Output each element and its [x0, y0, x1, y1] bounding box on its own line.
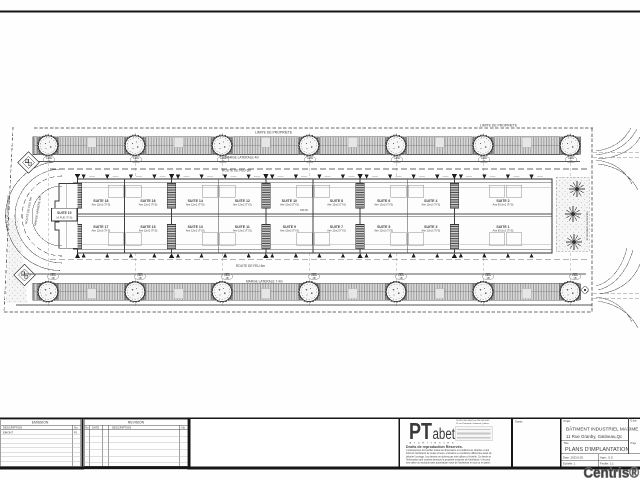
svg-text:En bordure rue Granby: En bordure rue Granby [585, 211, 589, 240]
svg-text:LIMITE DE PROPRIETE: LIMITE DE PROPRIETE [255, 131, 293, 135]
svg-text:DATE: DATE [92, 426, 99, 430]
svg-text:Aire 90.2m2 (TYS): Aire 90.2m2 (TYS) [493, 204, 514, 207]
svg-text:Projet: Projet [564, 419, 571, 423]
svg-text:Aire 12m2 (TYS): Aire 12m2 (TYS) [139, 230, 158, 233]
svg-text:14 RUE (TYS): 14 RUE (TYS) [56, 217, 72, 220]
svg-text:PLANS D'IMPLANTATION: PLANS D'IMPLANTATION [565, 447, 629, 453]
svg-text:MARGE LATERALE 4m: MARGE LATERALE 4m [225, 156, 259, 160]
svg-text:etre utilise ou reproduit sans: etre utilise ou reproduit sans autorisat… [406, 461, 491, 464]
svg-text:SUITE 17: SUITE 17 [93, 225, 108, 229]
svg-text:Proje: Proje [631, 442, 637, 445]
svg-text:Aire 12m2 (TYS): Aire 12m2 (TYS) [92, 230, 111, 233]
svg-text:Aire 12m2 (TYS): Aire 12m2 (TYS) [374, 204, 393, 207]
svg-text:1B: 1B [573, 276, 576, 280]
svg-text:1A: 1A [569, 159, 572, 163]
svg-text:SUITE 18: SUITE 18 [93, 199, 108, 203]
svg-text:DESCRIPTION: DESCRIPTION [112, 426, 131, 430]
svg-text:11 Rue Granby, Gatineau,Qc: 11 Rue Granby, Gatineau,Qc [566, 434, 623, 439]
svg-text:Aire 12m2 (TYS): Aire 12m2 (TYS) [327, 230, 346, 233]
svg-text:1B: 1B [486, 276, 489, 280]
svg-text:Centris®: Centris® [584, 464, 640, 480]
svg-text:1B: 1B [138, 276, 141, 280]
svg-text:Titre: Titre [564, 441, 570, 445]
svg-text:180.00: 180.00 [300, 208, 308, 212]
svg-text:SUITE 10: SUITE 10 [282, 199, 297, 203]
svg-text:Aire 90.2m2 (TYS): Aire 90.2m2 (TYS) [493, 230, 514, 233]
svg-text:Aire 12m2 (TYS): Aire 12m2 (TYS) [233, 230, 252, 233]
svg-text:L'entrepreneur doit verifier t: L'entrepreneur doit verifier toutes les … [406, 449, 489, 452]
svg-text:Aire 12m2 (TYS): Aire 12m2 (TYS) [421, 204, 440, 207]
svg-text:Aire 12m2 (TYS): Aire 12m2 (TYS) [186, 204, 205, 207]
svg-text:SUITE 3: SUITE 3 [424, 225, 437, 229]
svg-text:1B: 1B [399, 276, 402, 280]
svg-text:l'information qu'il contient d: l'information qu'il contient demeure la … [406, 458, 490, 461]
svg-text:No: No [182, 426, 186, 430]
svg-text:1A: 1A [395, 159, 398, 163]
svg-text:DESCRIPTION: DESCRIPTION [3, 426, 22, 430]
svg-text:No: No [85, 426, 89, 430]
svg-text:SUITE 15: SUITE 15 [140, 225, 155, 229]
svg-text:EMISSION: EMISSION [32, 421, 49, 425]
svg-text:MARGE LATERALE 7.4m: MARGE LATERALE 7.4m [246, 279, 283, 283]
svg-text:SUITE 7: SUITE 7 [330, 225, 343, 229]
svg-text:SUITE 13: SUITE 13 [188, 225, 203, 229]
svg-text:Date: 2023.6.05: Date: 2023.6.05 [563, 455, 583, 459]
svg-text:SUITE 9: SUITE 9 [283, 225, 296, 229]
svg-text:SUITE 12: SUITE 12 [235, 199, 250, 203]
svg-text:Aire 12m2 (TYS): Aire 12m2 (TYS) [280, 230, 299, 233]
svg-text:LIMITE DE PROPRIETE: LIMITE DE PROPRIETE [480, 124, 518, 128]
svg-text:Aire 12m2 (TYS): Aire 12m2 (TYS) [421, 230, 440, 233]
svg-text:SUITE 6: SUITE 6 [377, 199, 390, 203]
svg-text:Aire 12m2 (TYS): Aire 12m2 (TYS) [139, 204, 158, 207]
svg-text:SUITE 19: SUITE 19 [57, 211, 71, 215]
svg-text:Appr.: S.G: Appr.: S.G [600, 455, 613, 459]
svg-text:ROUTE DE FEU 6m: ROUTE DE FEU 6m [222, 169, 251, 173]
svg-text:BÂTIMENT INDUSTRIEL MAXIME LAC: BÂTIMENT INDUSTRIEL MAXIME LAC [566, 425, 640, 431]
svg-text:11 rue Principale, Gatineau Qu: 11 rue Principale, Gatineau Quebec [456, 422, 489, 425]
svg-text:1A: 1A [134, 159, 137, 163]
svg-text:EMONT: EMONT [3, 430, 13, 434]
svg-text:ROUTE DE FEU 6m: ROUTE DE FEU 6m [236, 264, 265, 268]
svg-text:a r c h i t e c t e s: a r c h i t e c t e s [410, 440, 455, 444]
svg-text:P1: P1 [74, 430, 78, 434]
svg-text:No: No [74, 426, 78, 430]
svg-text:informer l'architecte de toute: informer l'architecte de toutes erreurs,… [406, 452, 492, 455]
svg-text:1B: 1B [51, 276, 54, 280]
svg-text:SUITE 16: SUITE 16 [140, 199, 155, 203]
svg-text:Sceau: Sceau [515, 419, 523, 423]
svg-text:SUITE 4: SUITE 4 [424, 199, 437, 203]
svg-text:debuter l'ouvrage. Les dessins: debuter l'ouvrage. Les dessins ne doiven… [406, 455, 491, 458]
svg-text:Echelle: 1: Echelle: 1 [563, 462, 576, 466]
svg-text:Tel 819 000 0000 Fax 819 000: Tel 819 000 0000 Fax 819 000 0000 [456, 420, 490, 422]
svg-text:E.dos: E.dos [631, 420, 638, 423]
svg-text:SUITE 1: SUITE 1 [496, 225, 509, 229]
svg-text:1A: 1A [482, 159, 485, 163]
svg-text:SUITE 11: SUITE 11 [235, 225, 250, 229]
svg-text:REVISION: REVISION [128, 421, 145, 425]
svg-text:Aire 12m2 (TYS): Aire 12m2 (TYS) [327, 204, 346, 207]
svg-text:Aire 12m2 (TYS): Aire 12m2 (TYS) [92, 204, 111, 207]
svg-text:Aire 12m2 (TYS): Aire 12m2 (TYS) [186, 230, 205, 233]
svg-text:Aire 12m2 (TYS): Aire 12m2 (TYS) [280, 204, 299, 207]
svg-text:SUITE 2: SUITE 2 [496, 199, 509, 203]
svg-text:SUITE 14: SUITE 14 [188, 199, 203, 203]
svg-text:1B: 1B [312, 276, 315, 280]
svg-text:Droits de reproduction Réservé: Droits de reproduction Réservés. [406, 445, 463, 449]
svg-text:SUITE 8: SUITE 8 [330, 199, 343, 203]
svg-text:SUITE 5: SUITE 5 [377, 225, 390, 229]
svg-text:Aire 12m2 (TYS): Aire 12m2 (TYS) [233, 204, 252, 207]
svg-text:1B: 1B [225, 276, 228, 280]
svg-text:1A: 1A [308, 159, 311, 163]
svg-text:Aire 12m2 (TYS): Aire 12m2 (TYS) [374, 230, 393, 233]
